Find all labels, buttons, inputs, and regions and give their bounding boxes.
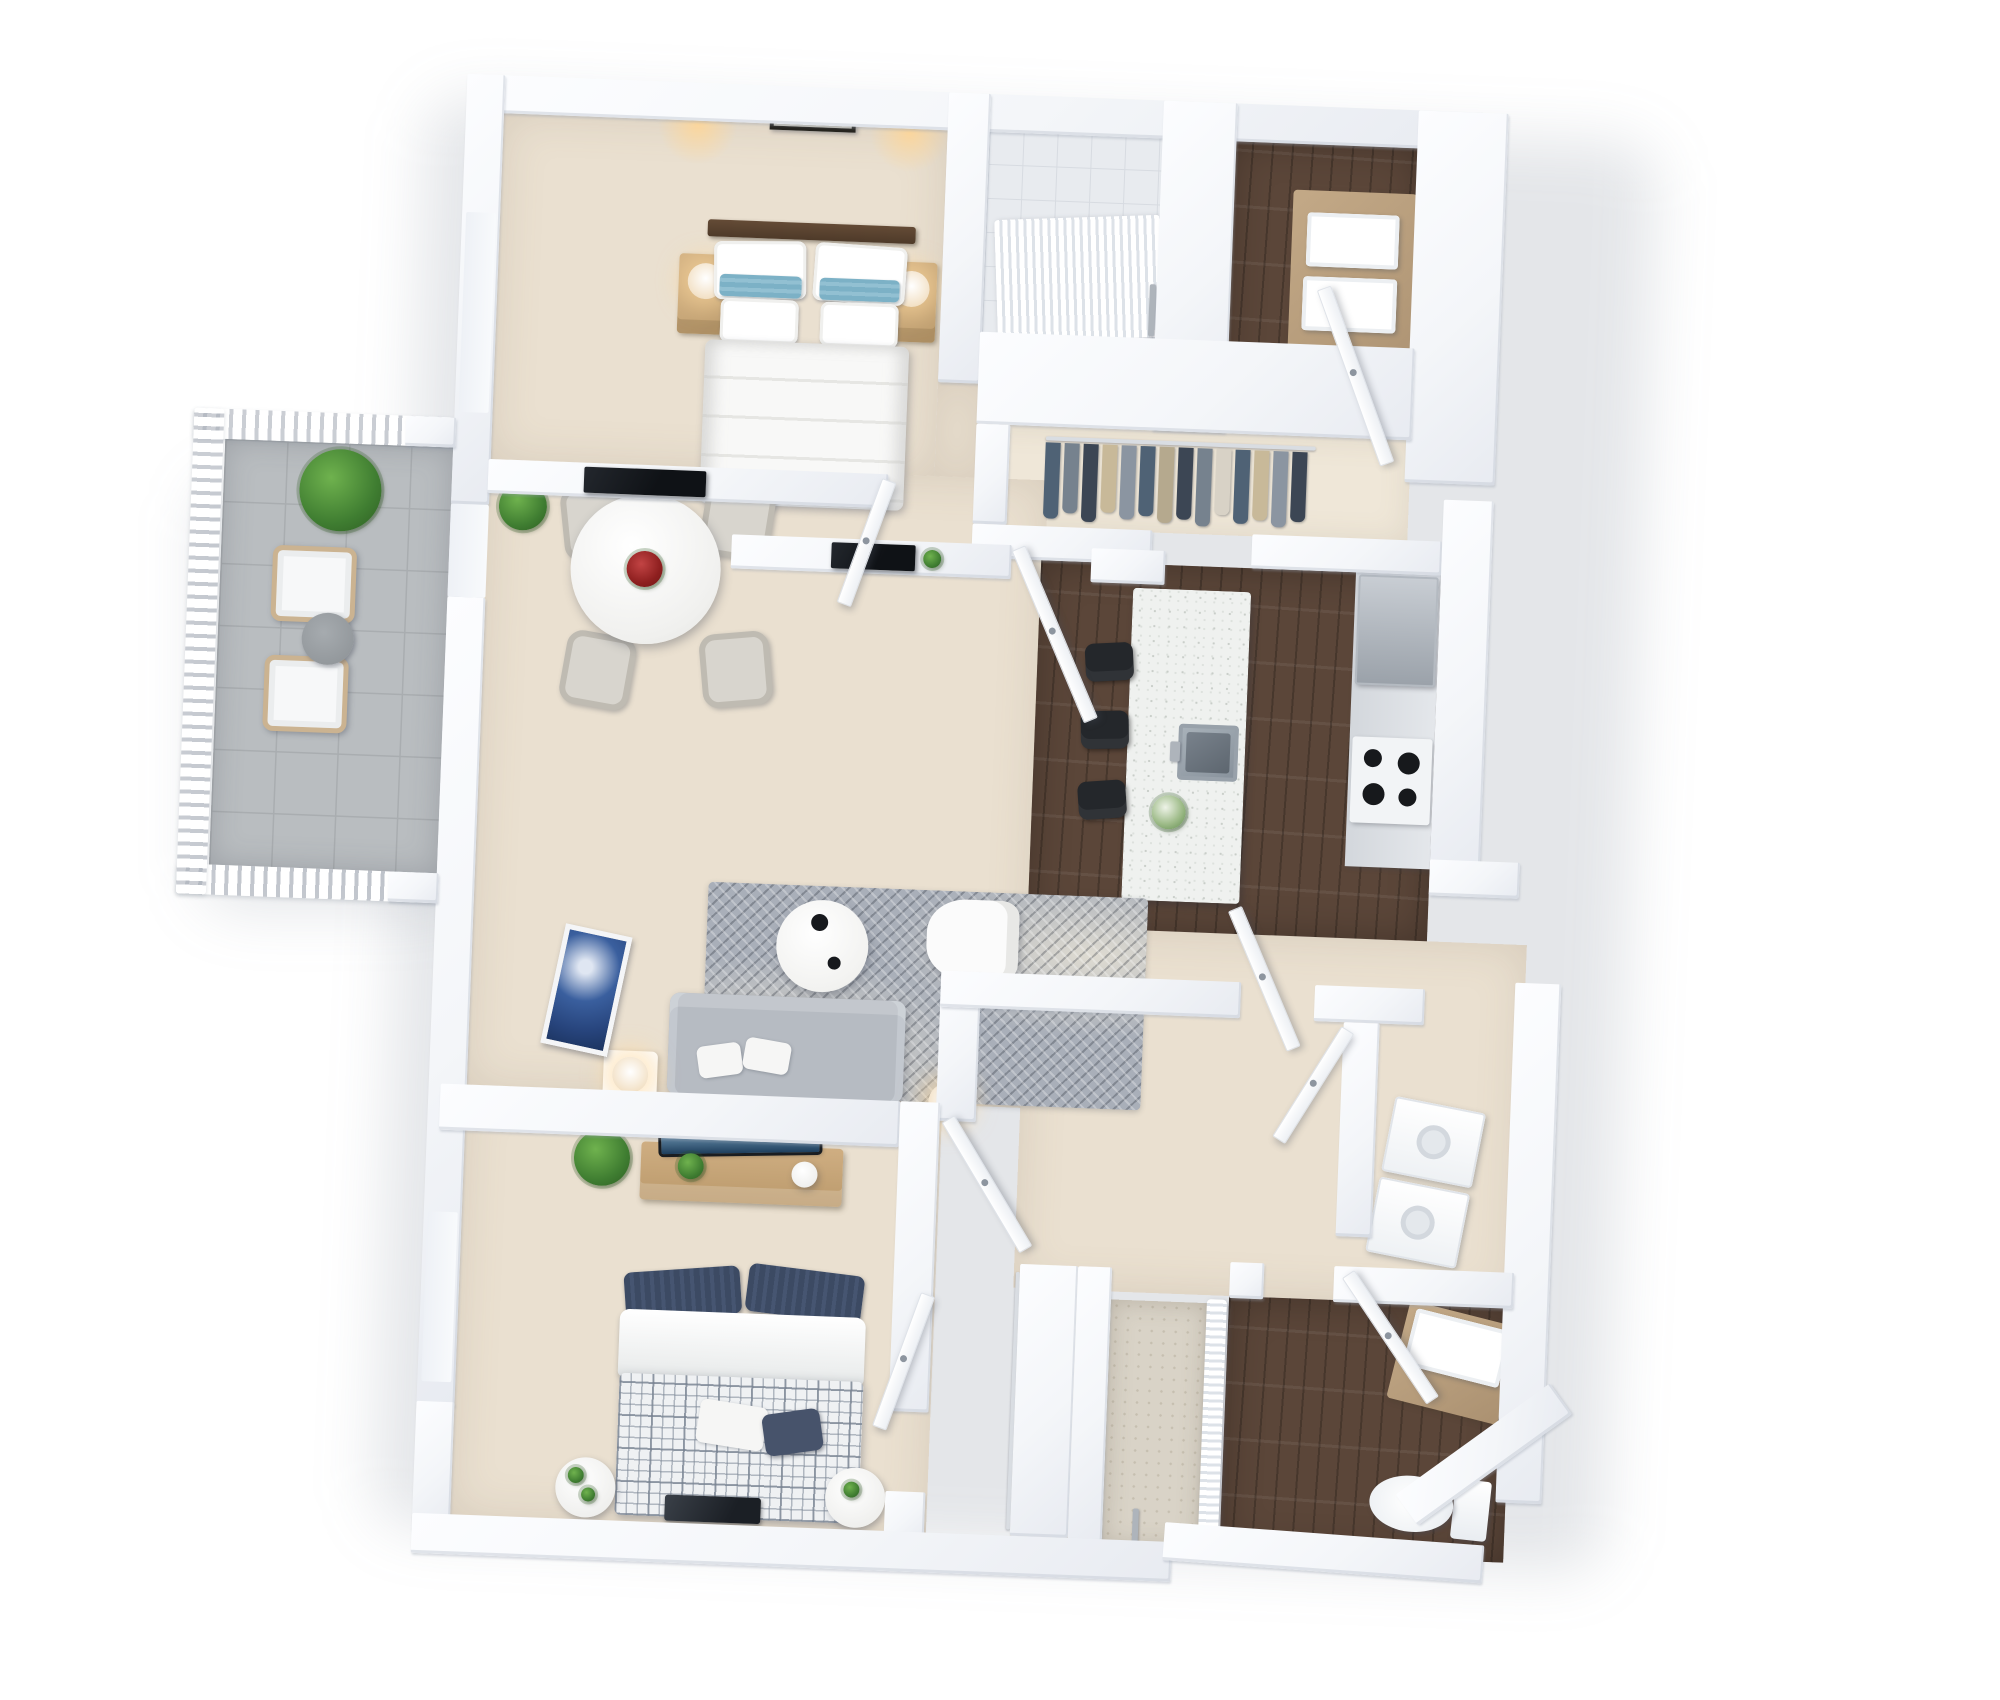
bath2-top-wall-stub [1229, 1262, 1264, 1299]
garment [1062, 443, 1080, 514]
burner [1362, 783, 1385, 806]
sink-basin [1185, 732, 1231, 774]
accent-armchair [925, 898, 1020, 981]
garment [1157, 447, 1175, 524]
throw-pillow-navy [761, 1408, 824, 1457]
refrigerator [1355, 574, 1439, 687]
master-bedroom-tv [584, 467, 707, 498]
vessel-sink-2 [1301, 276, 1397, 334]
bar-stool-3 [1077, 779, 1127, 820]
garment [1119, 445, 1137, 520]
dryer-door [1414, 1122, 1454, 1162]
exterior-wall-top-right [1405, 110, 1509, 485]
balcony-chair-2 [262, 654, 349, 733]
sofa-pillow [696, 1041, 744, 1079]
apartment-plan [362, 60, 1669, 1607]
garment [1176, 447, 1194, 520]
cooktop [1349, 736, 1432, 825]
dryer [1381, 1096, 1486, 1188]
bathroom2-shower-floor [1101, 1299, 1208, 1549]
garment [1043, 442, 1061, 519]
kitchen-faucet [1170, 741, 1181, 761]
bar-stool-1 [1085, 642, 1135, 682]
balcony-wall-stub-bottom [388, 871, 439, 903]
garment [1138, 446, 1156, 517]
garment [1100, 444, 1118, 513]
dining-chair-4 [698, 630, 774, 710]
garment [1214, 449, 1232, 516]
balcony-wall-stub-top [405, 416, 456, 448]
blue-accent-pillow [819, 278, 900, 303]
garment [1290, 452, 1308, 523]
washer-door [1398, 1203, 1438, 1243]
kitchen-sink [1177, 724, 1239, 782]
burner [1398, 788, 1417, 807]
living-room-tv [831, 542, 916, 571]
burner [1364, 749, 1383, 768]
garment [1271, 451, 1289, 528]
closet-bottom-wall-right [1251, 534, 1442, 575]
garment [1252, 450, 1270, 521]
right-jog-wall [1429, 859, 1520, 898]
balcony-glass-door [447, 504, 489, 598]
bed-pillow [719, 298, 799, 345]
burner [1397, 752, 1420, 775]
shower-curtain [994, 215, 1164, 342]
laundry-top-wall [1314, 985, 1425, 1025]
garment [1081, 444, 1099, 523]
blue-accent-pillow [719, 274, 802, 299]
hall-closet-wall-block [1010, 1264, 1078, 1538]
bedroom-corridor-floor [934, 380, 980, 480]
closet-garments [1043, 442, 1316, 532]
garment [1195, 448, 1213, 527]
bed-pillow [819, 302, 899, 349]
balcony-chair-1 [270, 545, 357, 624]
entry-wall-stub [1090, 548, 1165, 585]
vessel-sink-1 [1306, 212, 1400, 269]
garment [1233, 450, 1251, 525]
laptop [664, 1494, 761, 1524]
closet-left-wall [973, 424, 1011, 525]
floorplan-scene [0, 0, 2000, 1700]
